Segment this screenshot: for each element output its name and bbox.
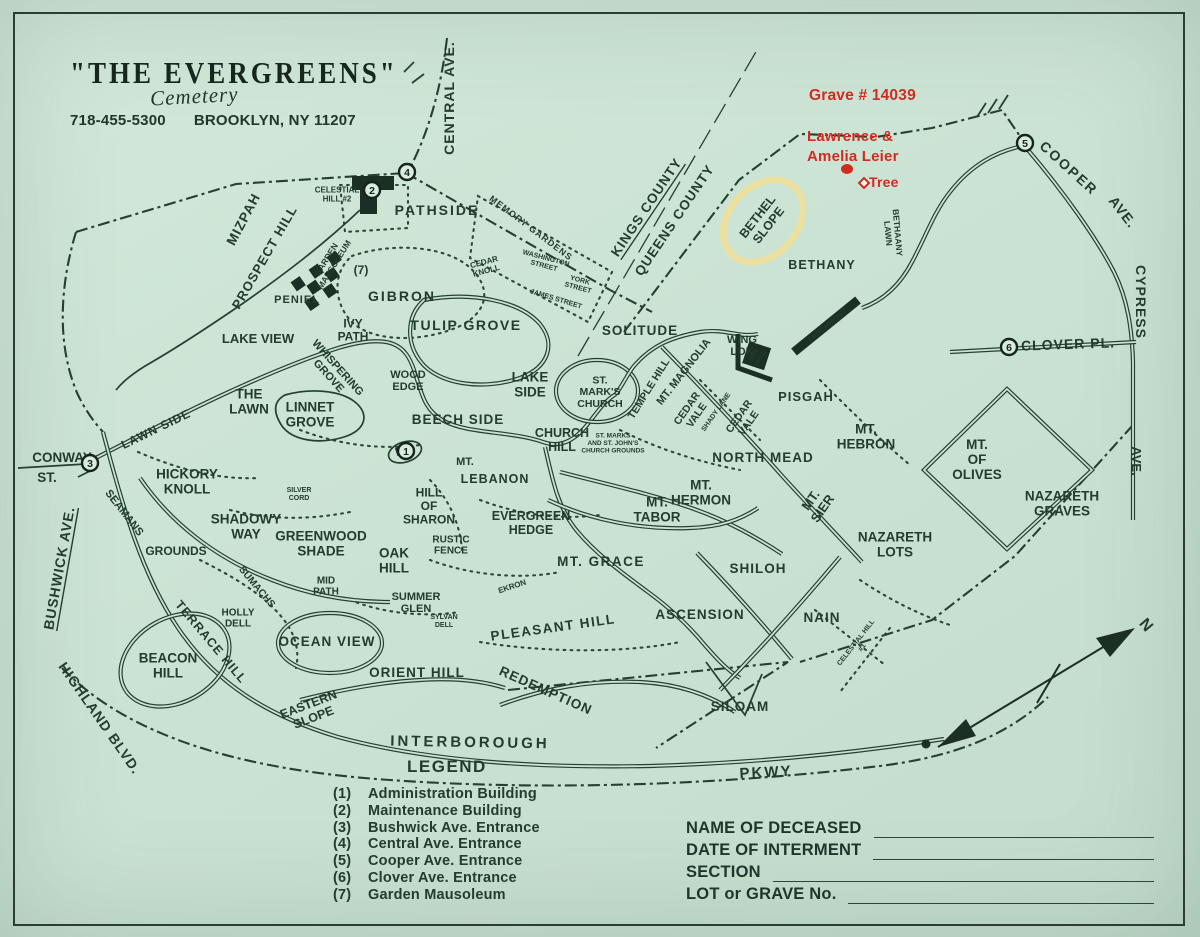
map-label-mt-sier: MT.SIER [795,483,837,525]
map-label-grounds: GROUNDS [145,544,206,558]
grave-annotation-marks [841,164,869,188]
map-label-ave: AVE. [1130,446,1145,475]
map-label-pisgah: PISGAH [778,389,834,404]
map-label-ocean-view: OCEAN VIEW [278,634,375,649]
map-label-larchmont: LARCHMONT [805,306,849,344]
deceased-name-line1: Lawrence & [807,128,893,145]
svg-text:4: 4 [404,167,410,179]
map-label-seamans: SEAMANS [102,488,145,539]
svg-text:3: 3 [87,458,93,470]
map-label-holly-dell: HOLLYDELL [222,607,255,629]
field-label-date-of-interment: DATE OF INTERMENT [686,841,861,860]
map-label-st: ST. [37,470,57,485]
map-label-hickory-knoll: HICKORYKNOLL [156,466,218,496]
map-label-york-street: YORKSTREET [564,273,595,295]
entrance-marker-1: 1 [398,443,414,459]
map-label-pkwy: PKWY [739,762,793,782]
north-arrow [922,628,1136,749]
map-label-celestial-hill-1: CELESTIAL HILL#1 [836,618,883,672]
svg-text:6: 6 [1006,342,1012,354]
legend-title: LEGEND [407,757,540,777]
map-label-interborough: INTERBOROUGH [390,732,550,752]
map-label-nazareth-graves: NAZARETHGRAVES [1025,488,1099,518]
map-label-nazareth-lots: NAZARETHLOTS [858,529,932,559]
map-label-james-street: JAMES STREET [529,288,583,311]
field-label-lot-or-grave-no: LOT or GRAVE No. [686,885,836,904]
field-label-name-of-deceased: NAME OF DECEASED [686,819,862,838]
entrance-marker-5: 5 [1017,135,1033,151]
map-label-tulip-grove: TULIP GROVE [410,317,521,333]
map-label-ave: AVE. [1106,193,1141,231]
map-label-silver-cord: SILVERCORD [287,487,312,502]
entrance-marker-3: 3 [82,455,98,471]
map-label-central-ave: CENTRAL AVE. [441,41,457,155]
map-label-cedar-vale: CEDARVALE [724,398,765,443]
map-label-mid-path: MIDPATH [313,575,339,597]
map-label-lake-view: LAKE VIEW [222,331,295,346]
map-label-7: (7) [354,263,369,277]
map-labels: CENTRAL AVE.COOPERAVE.CYPRESSAVE.CLOVER … [32,41,1156,782]
map-label-north-mead: NORTH MEAD [712,450,814,465]
burial-record-form: NAME OF DECEASED DATE OF INTERMENT SECTI… [686,816,1154,904]
map-label-mt: MT. [456,456,474,468]
svg-text:2: 2 [369,185,375,197]
legend-item: (5)Cooper Ave. Entrance [333,853,540,870]
map-label-sylvan-dell: SYLVANDELL [430,614,457,629]
map-label-peniel: PENIEL [274,294,320,306]
map-label-hill-of-sharon: HILLOFSHARON [403,486,455,527]
map-label-bethany: BETHANY [788,258,855,272]
map-label-the-lawn: THELAWN [229,386,269,416]
map-label-celestial-hill-2: CELESTIALHILL #2 [315,185,360,203]
map-label-beacon-hill: BEACONHILL [139,650,198,680]
map-label-ekron: EKRON [497,577,527,595]
legend: LEGEND (1)Administration Building (2)Mai… [333,757,540,904]
map-header: "THE EVERGREENS" Cemetery 718-455-5300 B… [70,58,398,129]
map-label-nain: NAIN [804,610,841,625]
map-label-pathside: PATHSIDE [395,202,480,218]
map-label-rustic-fence: RUSTICFENCE [432,534,469,556]
legend-item: (2)Maintenance Building [333,803,540,820]
map-label-mt-grace: MT. GRACE [557,554,645,569]
legend-item: (3)Bushwick Ave. Entrance [333,820,540,837]
blank-line [874,817,1154,838]
map-label-st-mark-s-church: ST.MARK'SCHURCH [577,374,623,410]
map-label-lebanon: LEBANON [461,472,530,486]
cemetery-boundary [62,50,1133,785]
deceased-name-line2: Amelia Leier [807,148,899,165]
map-label-mt-hebron: MT.HEBRON [837,421,896,451]
legend-item: (1)Administration Building [333,786,540,803]
scanned-cemetery-map-page: CENTRAL AVE.COOPERAVE.CYPRESSAVE.CLOVER … [0,0,1200,937]
map-label-wood-edge: WOODEDGE [390,369,425,393]
blank-line [773,861,1154,882]
map-label-bethel-slope: BETHELSLOPE [737,192,790,249]
entrance-marker-2: 2 [364,182,380,198]
map-label-evergreen-hedge: EVERGREENHEDGE [492,509,571,537]
map-label-greenwood-shade: GREENWOODSHADE [275,528,367,558]
map-label-cypress: CYPRESS [1133,265,1149,339]
legend-item: (4)Central Ave. Entrance [333,836,540,853]
map-label-cooper: COOPER [1037,138,1102,199]
map-label-mt-of-olives: MT.OFOLIVES [952,436,1002,481]
map-label-shiloh: SHILOH [729,561,786,576]
map-label-beech-side: BEECH SIDE [412,412,505,427]
map-label-oak-hill: OAKHILL [379,545,409,575]
map-label-ascension: ASCENSION [655,607,744,622]
map-label-linnet-grove: LINNETGROVE [286,399,336,429]
map-label-cedar-knoll: CEDARKNOLL [469,254,501,279]
legend-item: (7)Garden Mausoleum [333,887,540,904]
map-label-orient-hill: ORIENT HILL [369,665,465,680]
map-label-sumachs: SUMACHS [237,564,278,610]
field-label-section: SECTION [686,863,761,882]
map-label-gibron: GIBRON [368,288,436,304]
map-label-mt-hermon: MT.HERMON [671,477,731,507]
map-label-lawn-side: LAWN SIDE [119,406,193,452]
tree-annotation: Tree [869,174,899,190]
grave-number-annotation: Grave # 14039 [809,87,916,105]
entrance-marker-4: 4 [399,164,415,180]
map-label-siloam: SILOAM [711,699,770,714]
map-label-n: N [1136,615,1156,635]
map-label-ivy-path: IVYPATH [338,316,369,343]
grave-location-dot [841,164,853,174]
legend-item: (6)Clover Ave. Entrance [333,870,540,887]
cemetery-map: CENTRAL AVE.COOPERAVE.CYPRESSAVE.CLOVER … [0,0,1200,937]
map-label-mizpah: MIZPAH [223,190,263,247]
blank-line [873,839,1154,860]
phone-number: 718-455-5300 [70,112,166,129]
tree-marker-icon [859,178,869,188]
map-label-clover-pl: CLOVER PL. [1021,334,1116,353]
map-label-bushwick-ave: BUSHWICK AVE. [40,505,77,631]
map-label-st-marks-and-st-john-s-church-grounds: ST. MARKSAND ST. JOHN'SCHURCH GROUNDS [581,432,645,454]
map-label-bethaany-lawn: BETHAANYLAWN [881,209,905,258]
svg-text:5: 5 [1022,138,1028,150]
svg-text:1: 1 [403,446,409,458]
map-label-lake-side: LAKESIDE [512,369,549,399]
map-label-solitude: SOLITUDE [602,323,678,338]
map-label-shadowy-way: SHADOWYWAY [211,511,282,541]
blank-line [848,883,1154,904]
map-label-pleasant-hill: PLEASANT HILL [490,611,617,643]
entrance-marker-6: 6 [1001,339,1017,355]
address: BROOKLYN, NY 11207 [194,112,356,129]
